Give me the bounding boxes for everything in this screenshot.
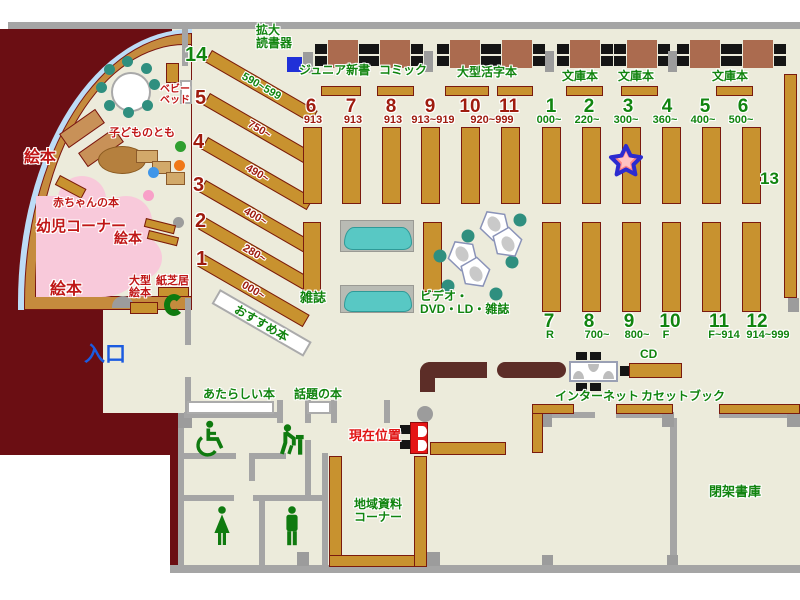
reading-table: [690, 40, 720, 68]
reading-table: [743, 40, 773, 68]
label-new-books: あたらしい本: [203, 388, 275, 401]
bookshelf: [303, 222, 321, 292]
bookshelf: [566, 86, 603, 96]
label-topic-books: 話題の本: [294, 388, 342, 401]
label-infant-corner: 幼児コーナー: [36, 219, 126, 235]
bookshelf: [582, 127, 601, 204]
toilet-man-icon: [280, 506, 304, 550]
label-bunko: 文庫本: [712, 70, 748, 83]
cd-shelf: [629, 363, 682, 378]
bookshelf: [377, 86, 414, 96]
label-large-print: 大型活字本: [457, 66, 517, 79]
stack-range: 500~: [721, 115, 761, 127]
outside-area: [170, 455, 178, 565]
stack-range: 920~999: [462, 115, 522, 127]
stool: [148, 167, 159, 178]
label-ehon: 絵本: [50, 281, 82, 298]
service-counter: [420, 362, 435, 392]
magazine-display-rack: [344, 291, 412, 312]
pillar: [297, 552, 309, 566]
chair: [557, 44, 569, 54]
chair: [104, 100, 115, 111]
chair: [141, 63, 152, 74]
stack-range: 000~: [529, 115, 569, 127]
label-baby-books: 赤ちゃんの本: [53, 198, 119, 210]
chair: [590, 352, 601, 360]
label-current-location: 現在位置: [349, 429, 401, 443]
kiosk-seat: [418, 426, 427, 437]
stack-number: 13: [760, 170, 779, 188]
bookshelf: [461, 127, 480, 204]
chair: [614, 56, 626, 66]
stack-range: 914~999: [738, 330, 798, 342]
chair: [400, 425, 410, 434]
chair: [677, 44, 689, 54]
stack-number: 2: [195, 211, 206, 233]
wall: [184, 495, 234, 501]
stack-range: 913: [378, 115, 408, 127]
chair: [677, 56, 689, 66]
chair: [315, 44, 327, 54]
pillar: [668, 51, 677, 72]
chair: [142, 100, 153, 111]
bookshelf: [501, 127, 520, 204]
wall: [322, 453, 328, 567]
chair: [149, 79, 160, 90]
computer-screen: [588, 364, 599, 372]
bookshelf: [542, 222, 561, 312]
bookshelf: [532, 404, 574, 414]
chair: [122, 56, 133, 67]
bookshelf: [321, 86, 361, 96]
toilet-woman-icon: [210, 506, 234, 550]
wall: [185, 298, 191, 345]
stack-number: 14: [185, 45, 207, 67]
stack-number: 3: [193, 175, 204, 197]
label-local-materials: 地域資料 コーナー: [346, 498, 410, 524]
reading-table: [450, 40, 480, 68]
bookshelf: [542, 127, 561, 204]
stack-range: 220~: [567, 115, 607, 127]
computer-screen: [603, 371, 614, 379]
pillar: [545, 51, 554, 72]
label-closed-stacks: 閉架書庫: [709, 485, 761, 499]
pillar: [427, 552, 440, 566]
wall: [249, 453, 255, 481]
bookshelf: [582, 222, 601, 312]
stool: [175, 141, 186, 152]
stack-number: 5: [195, 88, 206, 110]
wall: [277, 400, 283, 423]
drinking-fountain-icon: [276, 423, 306, 461]
magazine-display-rack: [340, 220, 414, 252]
label-comic: コミック: [379, 64, 427, 77]
wall: [384, 400, 390, 423]
stack-range: F: [651, 330, 681, 342]
bookshelf: [702, 127, 721, 204]
chair: [104, 64, 115, 75]
bookshelf: [382, 127, 401, 204]
pillar: [788, 298, 799, 312]
kiosk-seat: [418, 440, 427, 451]
chair: [123, 107, 134, 118]
bookshelf: [662, 127, 681, 204]
local-materials-shelf: [329, 456, 342, 567]
local-materials-shelf: [414, 456, 427, 567]
internet-table: [569, 361, 618, 382]
bookshelf: [430, 442, 506, 455]
label-av-corner: ビデオ・ DVD・LD・雑誌: [420, 290, 509, 316]
reading-table: [570, 40, 600, 68]
stack-range: 400~: [683, 115, 723, 127]
stack-range: 300~: [606, 115, 646, 127]
bookshelf: [702, 222, 721, 312]
stool: [174, 160, 185, 171]
bookshelf: [421, 127, 440, 204]
magazine-display-rack: [340, 285, 414, 313]
reading-table: [502, 40, 532, 68]
label-cd: CD: [640, 348, 657, 361]
label-junior-books: ジュニア新書: [299, 64, 370, 77]
chair: [96, 82, 107, 93]
chair: [434, 214, 527, 301]
bookshelf: [303, 127, 322, 204]
label-large-picture-books: 大型 絵本: [129, 276, 151, 300]
chair: [601, 44, 613, 54]
bookshelf: [342, 127, 361, 204]
stack-number: 1: [196, 249, 207, 271]
bookshelf: [742, 127, 761, 204]
public-phone-icon: [164, 294, 184, 316]
pillar: [417, 406, 433, 422]
chair: [774, 44, 786, 54]
stack-range: 913~919: [408, 115, 458, 127]
chair: [367, 44, 379, 54]
stack-range: 913: [338, 115, 368, 127]
stack-range: 913: [298, 115, 328, 127]
label-magazines: 雑誌: [293, 291, 333, 305]
label-ehon: 絵本: [24, 149, 56, 166]
chair: [576, 352, 587, 360]
chair: [411, 44, 423, 54]
step-block: [166, 172, 185, 185]
library-floor-map: 絵本 絵本 絵本 赤ちゃんの本 幼児コーナー 子どものとも ベビー ベッド 大型…: [0, 0, 800, 600]
service-counter: [497, 362, 566, 378]
label-bunko: 文庫本: [562, 70, 598, 83]
wall: [259, 497, 265, 568]
wall: [331, 400, 337, 423]
pillar: [542, 555, 553, 565]
entrance-label: 入口: [84, 344, 126, 367]
bookshelf: [497, 86, 533, 96]
star-marker-icon: [608, 143, 644, 177]
chair: [557, 56, 569, 66]
reading-table: [627, 40, 657, 68]
outside-white: [0, 455, 170, 573]
computer-screen: [573, 371, 584, 379]
chair: [400, 440, 410, 449]
magazine-display-rack: [344, 227, 412, 250]
bookshelf: [716, 86, 753, 96]
label-baby-bed: ベビー ベッド: [160, 85, 190, 107]
bookshelf: [742, 222, 761, 312]
bookshelf: [622, 222, 641, 312]
label-bunko: 文庫本: [618, 70, 654, 83]
stool: [143, 190, 154, 201]
new-books-shelf: [187, 401, 274, 414]
label-kamishibai: 紙芝居: [156, 276, 189, 288]
chair: [730, 56, 742, 66]
bookshelf: [445, 86, 489, 96]
label-magnifier: 拡大 読書器: [256, 24, 292, 50]
label-kodomo-no-tomo: 子どものとも: [109, 128, 175, 140]
bookshelf: [784, 74, 797, 298]
wheelchair-icon: [192, 420, 226, 458]
current-location-kiosk: [410, 422, 428, 454]
pillar: [787, 412, 800, 427]
topic-books-shelf: [307, 401, 331, 414]
stack-range: 360~: [645, 115, 685, 127]
chair: [730, 44, 742, 54]
chair: [601, 56, 613, 66]
label-internet: インターネット: [555, 390, 639, 403]
chair: [533, 44, 545, 54]
outside-area: [0, 413, 178, 455]
bookshelf: [616, 404, 673, 414]
bookshelf: [719, 404, 800, 414]
pillar: [662, 412, 674, 427]
pillar: [667, 555, 678, 565]
baby-bed: [166, 63, 179, 83]
bookshelf: [130, 302, 158, 314]
chair: [437, 44, 449, 54]
chair: [774, 56, 786, 66]
bookshelf: [621, 86, 658, 96]
local-materials-shelf: [329, 555, 427, 567]
stack-range: R: [536, 330, 564, 342]
chair: [614, 44, 626, 54]
wall: [8, 22, 800, 29]
stack-number: 4: [193, 132, 204, 154]
stack-range: 700~: [577, 330, 617, 342]
label-cassette-books: カセットブック: [641, 390, 725, 403]
wall: [670, 418, 677, 565]
chair: [533, 56, 545, 66]
bookshelf: [662, 222, 681, 312]
chair: [489, 44, 501, 54]
chair: [437, 56, 449, 66]
